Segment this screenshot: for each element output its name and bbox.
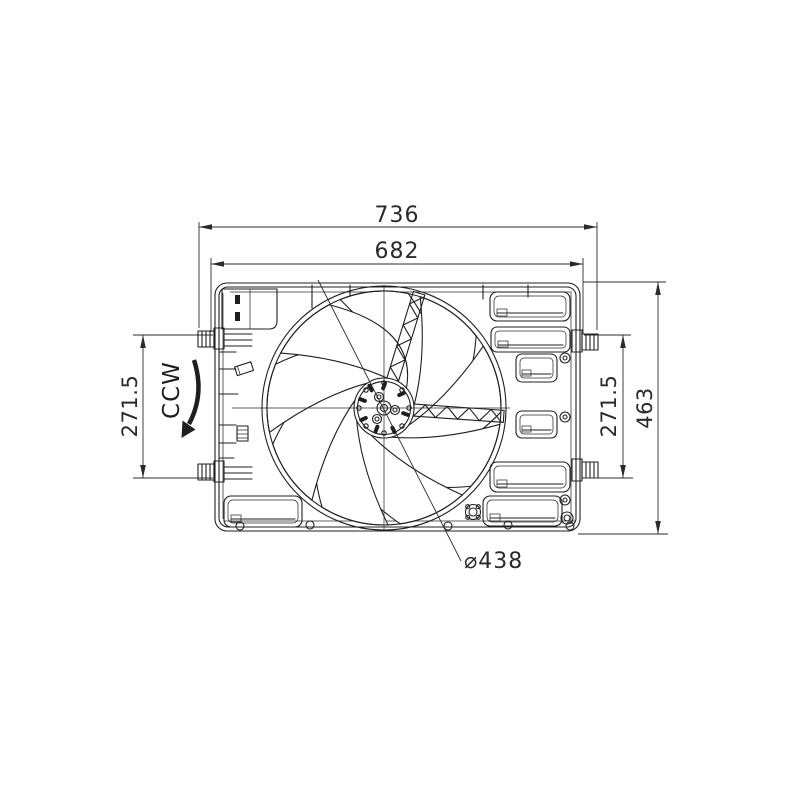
dim-label-diameter: ⌀438 bbox=[464, 549, 523, 574]
vent-flap bbox=[490, 292, 570, 321]
dimension-height-right: 271.5 bbox=[584, 335, 633, 478]
wiring-connector bbox=[222, 289, 277, 329]
vent-flap bbox=[483, 496, 562, 526]
dim-label-271-right: 271.5 bbox=[597, 375, 621, 438]
screw-bosses-right bbox=[560, 353, 570, 505]
mounting-tab-left-bottom bbox=[198, 461, 252, 482]
vent-flap bbox=[490, 462, 570, 492]
ccw-arrow bbox=[189, 360, 198, 424]
vent-flap-bottom-left bbox=[224, 496, 302, 527]
rotation-indicator: CCW bbox=[159, 360, 198, 438]
fan-shroud-technical-drawing: 736 682 271.5 271.5 463 ⌀438 CCW bbox=[0, 0, 800, 800]
vent-flap bbox=[516, 411, 557, 438]
drawing-svg: 736 682 271.5 271.5 463 ⌀438 CCW bbox=[0, 0, 800, 800]
mounting-tab-left-top bbox=[198, 328, 252, 349]
vent-flap bbox=[516, 354, 557, 382]
vent-flap bbox=[491, 327, 570, 352]
rotation-direction-label: CCW bbox=[159, 361, 185, 419]
dim-label-736: 736 bbox=[375, 203, 420, 228]
dim-label-271-left: 271.5 bbox=[118, 375, 142, 438]
dim-label-463: 463 bbox=[633, 387, 657, 429]
dim-label-682: 682 bbox=[375, 239, 420, 264]
fan bbox=[232, 285, 510, 536]
